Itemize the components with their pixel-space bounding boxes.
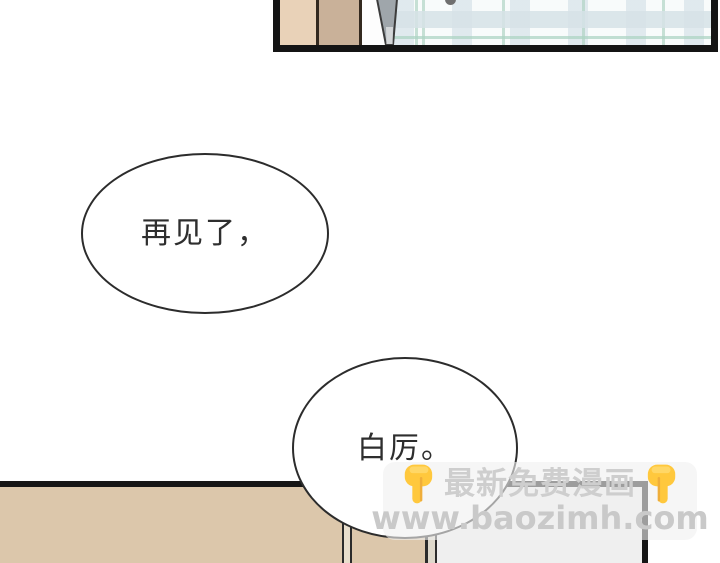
- watermark-overlay: 最新免费漫画 www.baozimh.com: [383, 462, 697, 540]
- comic-page[interactable]: 再见了， 白厉。 最新免费漫画 www.baozimh.com: [0, 0, 720, 563]
- watermark-url: www.baozimh.com: [371, 502, 708, 534]
- speech-bubble-1-text: 再见了，: [141, 217, 269, 250]
- top-panel: [273, 0, 718, 52]
- wardrobe-edge-line: [359, 0, 362, 45]
- closet-door-edge: [372, 0, 402, 45]
- wardrobe-door-left: [280, 0, 316, 45]
- watermark-title: 最新免费漫画: [444, 469, 636, 500]
- finger-down-icon: [645, 463, 679, 506]
- speech-bubble-1: 再见了，: [81, 153, 329, 314]
- top-panel-interior: [280, 0, 711, 45]
- speech-bubble-2-text: 白厉。: [357, 432, 453, 465]
- plaid-curtain: [384, 0, 711, 45]
- wardrobe-door-right: [319, 0, 359, 45]
